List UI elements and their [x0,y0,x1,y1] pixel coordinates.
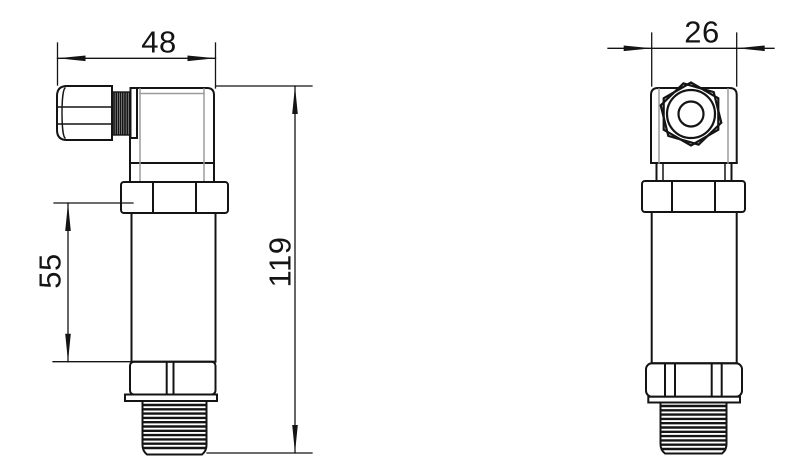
hex-adapter-upper-front [642,181,745,212]
arrowhead [58,56,86,62]
arrowhead [624,46,652,52]
connector-housing [130,88,214,182]
dimension-26-label: 26 [684,17,719,48]
dimension-55-label: 55 [35,253,66,288]
gland-nut-body [57,86,112,140]
hex-nut-lower-front [646,363,742,396]
pressure-transmitter-drawing [0,0,799,469]
technical-drawing: 48 26 119 55 [0,0,799,469]
cable-gland-front [661,83,722,146]
body-cylinder-front [652,212,737,363]
process-thread-front [661,403,727,454]
arrowhead [737,46,765,52]
arrowhead [65,203,71,231]
gland-washer [131,88,138,138]
arrowhead [65,334,71,362]
side-view [57,86,228,455]
dimension-119-label: 119 [265,237,296,288]
arrowhead [292,425,298,453]
arrowhead [188,56,216,62]
dimension-48 [58,43,216,88]
dimension-48-label: 48 [141,27,176,58]
housing-neck [657,163,732,181]
body-cylinder [132,213,216,362]
hex-adapter-upper [121,182,228,213]
process-thread [143,401,207,455]
hex-nut-lower [130,362,216,395]
cable-gland-side [57,86,137,140]
front-view [642,83,745,454]
arrowhead [292,86,298,114]
